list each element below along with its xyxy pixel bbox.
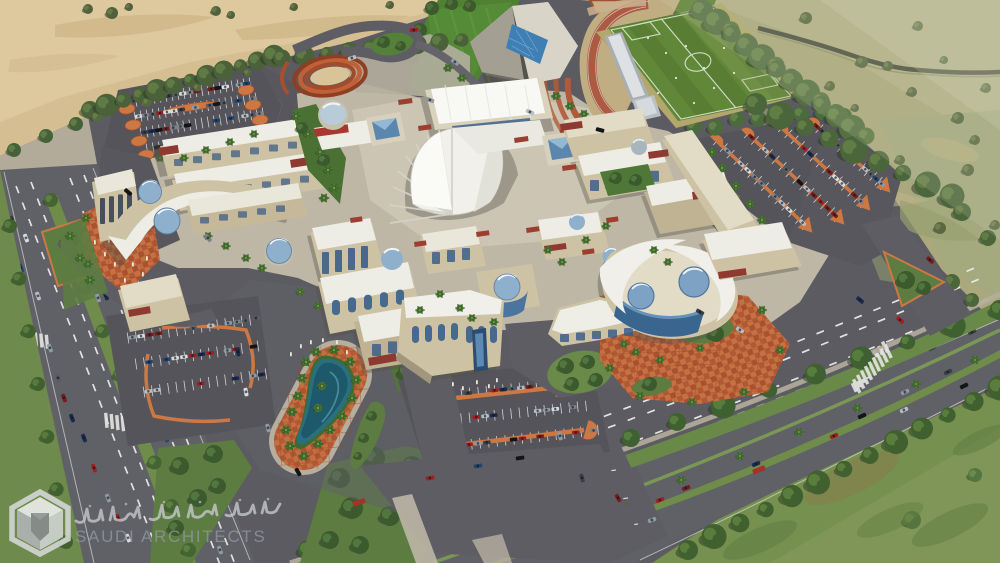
svg-text:SAUDI ARCHITECTS: SAUDI ARCHITECTS [75,527,267,546]
